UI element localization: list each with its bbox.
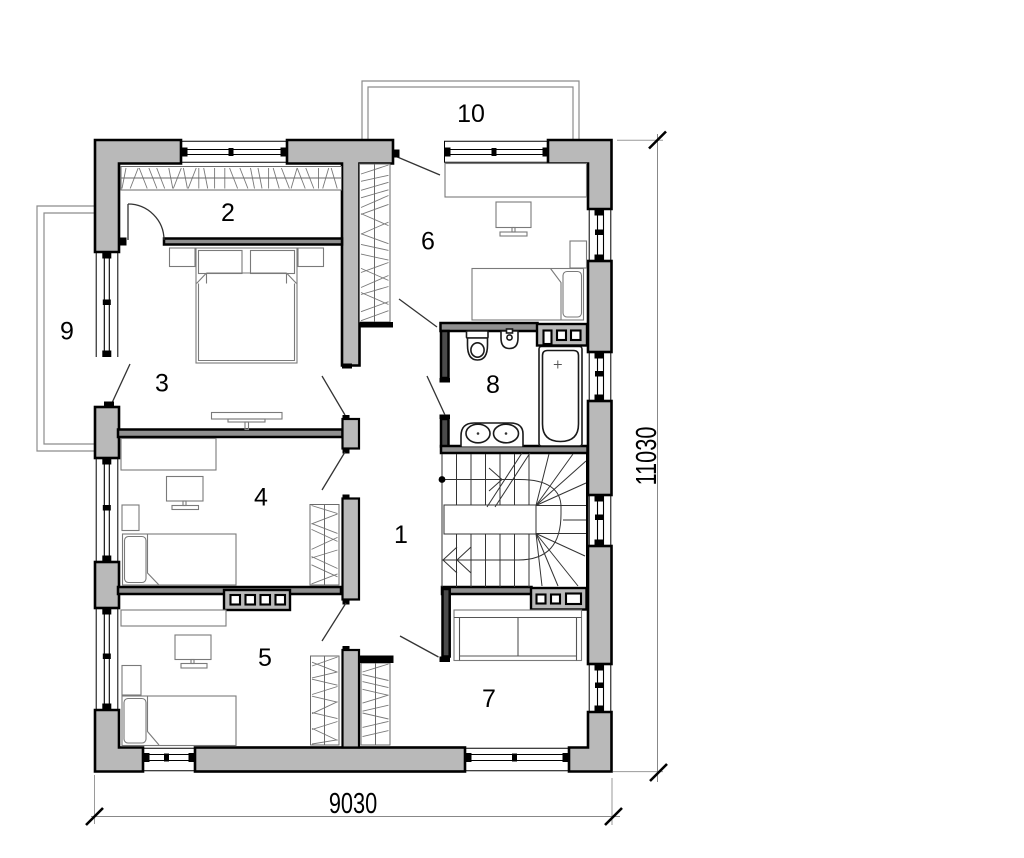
svg-text:4: 4	[254, 484, 268, 512]
svg-text:5: 5	[258, 644, 272, 672]
svg-text:2: 2	[221, 199, 235, 227]
svg-text:3: 3	[155, 370, 169, 398]
svg-text:1: 1	[394, 521, 408, 549]
svg-text:9: 9	[60, 318, 74, 346]
svg-text:9030: 9030	[329, 788, 377, 820]
svg-text:11030: 11030	[631, 427, 663, 486]
svg-text:10: 10	[457, 100, 485, 128]
svg-text:8: 8	[486, 371, 500, 399]
svg-text:7: 7	[482, 685, 496, 713]
svg-text:6: 6	[421, 228, 435, 256]
